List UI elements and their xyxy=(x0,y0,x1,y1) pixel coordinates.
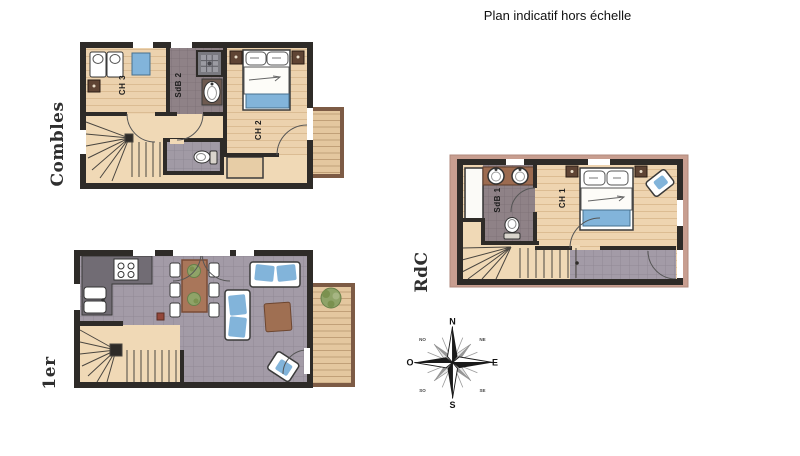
sofa xyxy=(225,290,250,340)
floorplan-sheet: Plan indicatif hors échelle Combles 1er … xyxy=(0,0,800,456)
room-label-sdb1: SdB 1 xyxy=(493,187,502,212)
toilet xyxy=(504,218,520,240)
stair-floor xyxy=(513,245,580,279)
stair-landing-floor xyxy=(80,325,180,382)
shower xyxy=(197,51,222,76)
page-title: Plan indicatif hors échelle xyxy=(450,8,665,23)
compass-rose: N E S O NO NE SO SE xyxy=(405,315,500,410)
nightstand xyxy=(292,51,304,64)
room-label-ch3: CH 3 xyxy=(118,75,127,95)
stair-wall xyxy=(80,321,123,326)
stove xyxy=(114,259,138,280)
rdc-floorplan: SdB 1 CH 1 xyxy=(440,148,690,290)
bathroom-sink xyxy=(202,79,222,105)
sofa xyxy=(250,262,300,287)
floor-label-combles: Combles xyxy=(48,94,70,194)
compass-label-so: SO xyxy=(419,388,426,393)
nightstand xyxy=(566,166,578,177)
single-bed xyxy=(90,52,106,77)
combles-floorplan: CH 3 SdB 2 CH 2 xyxy=(75,42,355,197)
premier-balcony xyxy=(313,283,355,387)
room-label-sdb2: SdB 2 xyxy=(174,72,183,97)
stair-wall xyxy=(180,350,184,382)
floor-label-rdc: RdC xyxy=(412,242,434,302)
double-sinks xyxy=(483,167,535,185)
wood-stove xyxy=(157,313,164,320)
combles-balcony xyxy=(310,107,344,178)
compass-label-se: SE xyxy=(479,388,485,393)
floor-label-1er: 1er xyxy=(40,343,62,403)
single-bed xyxy=(107,52,123,77)
premier-floorplan xyxy=(73,246,368,441)
room-label-ch2: CH 2 xyxy=(254,120,263,140)
nightstand xyxy=(635,166,647,177)
compass-label-e: E xyxy=(492,358,498,368)
shower-closet xyxy=(465,168,483,220)
compass-label-no: NO xyxy=(419,337,426,342)
nightstand xyxy=(88,80,100,92)
plant xyxy=(321,288,341,308)
nightstand xyxy=(230,51,242,64)
double-bed xyxy=(243,50,290,110)
compass-label-o: O xyxy=(406,358,413,368)
toilet xyxy=(194,151,217,164)
bed-blue-cover xyxy=(132,53,150,75)
compass-label-n: N xyxy=(449,317,456,327)
compass-label-ne: NE xyxy=(479,337,485,342)
room-label-ch1: CH 1 xyxy=(558,188,567,208)
coffee-table xyxy=(264,302,292,332)
closet xyxy=(227,157,263,178)
dining-table xyxy=(182,260,207,312)
compass-label-s: S xyxy=(449,400,455,410)
